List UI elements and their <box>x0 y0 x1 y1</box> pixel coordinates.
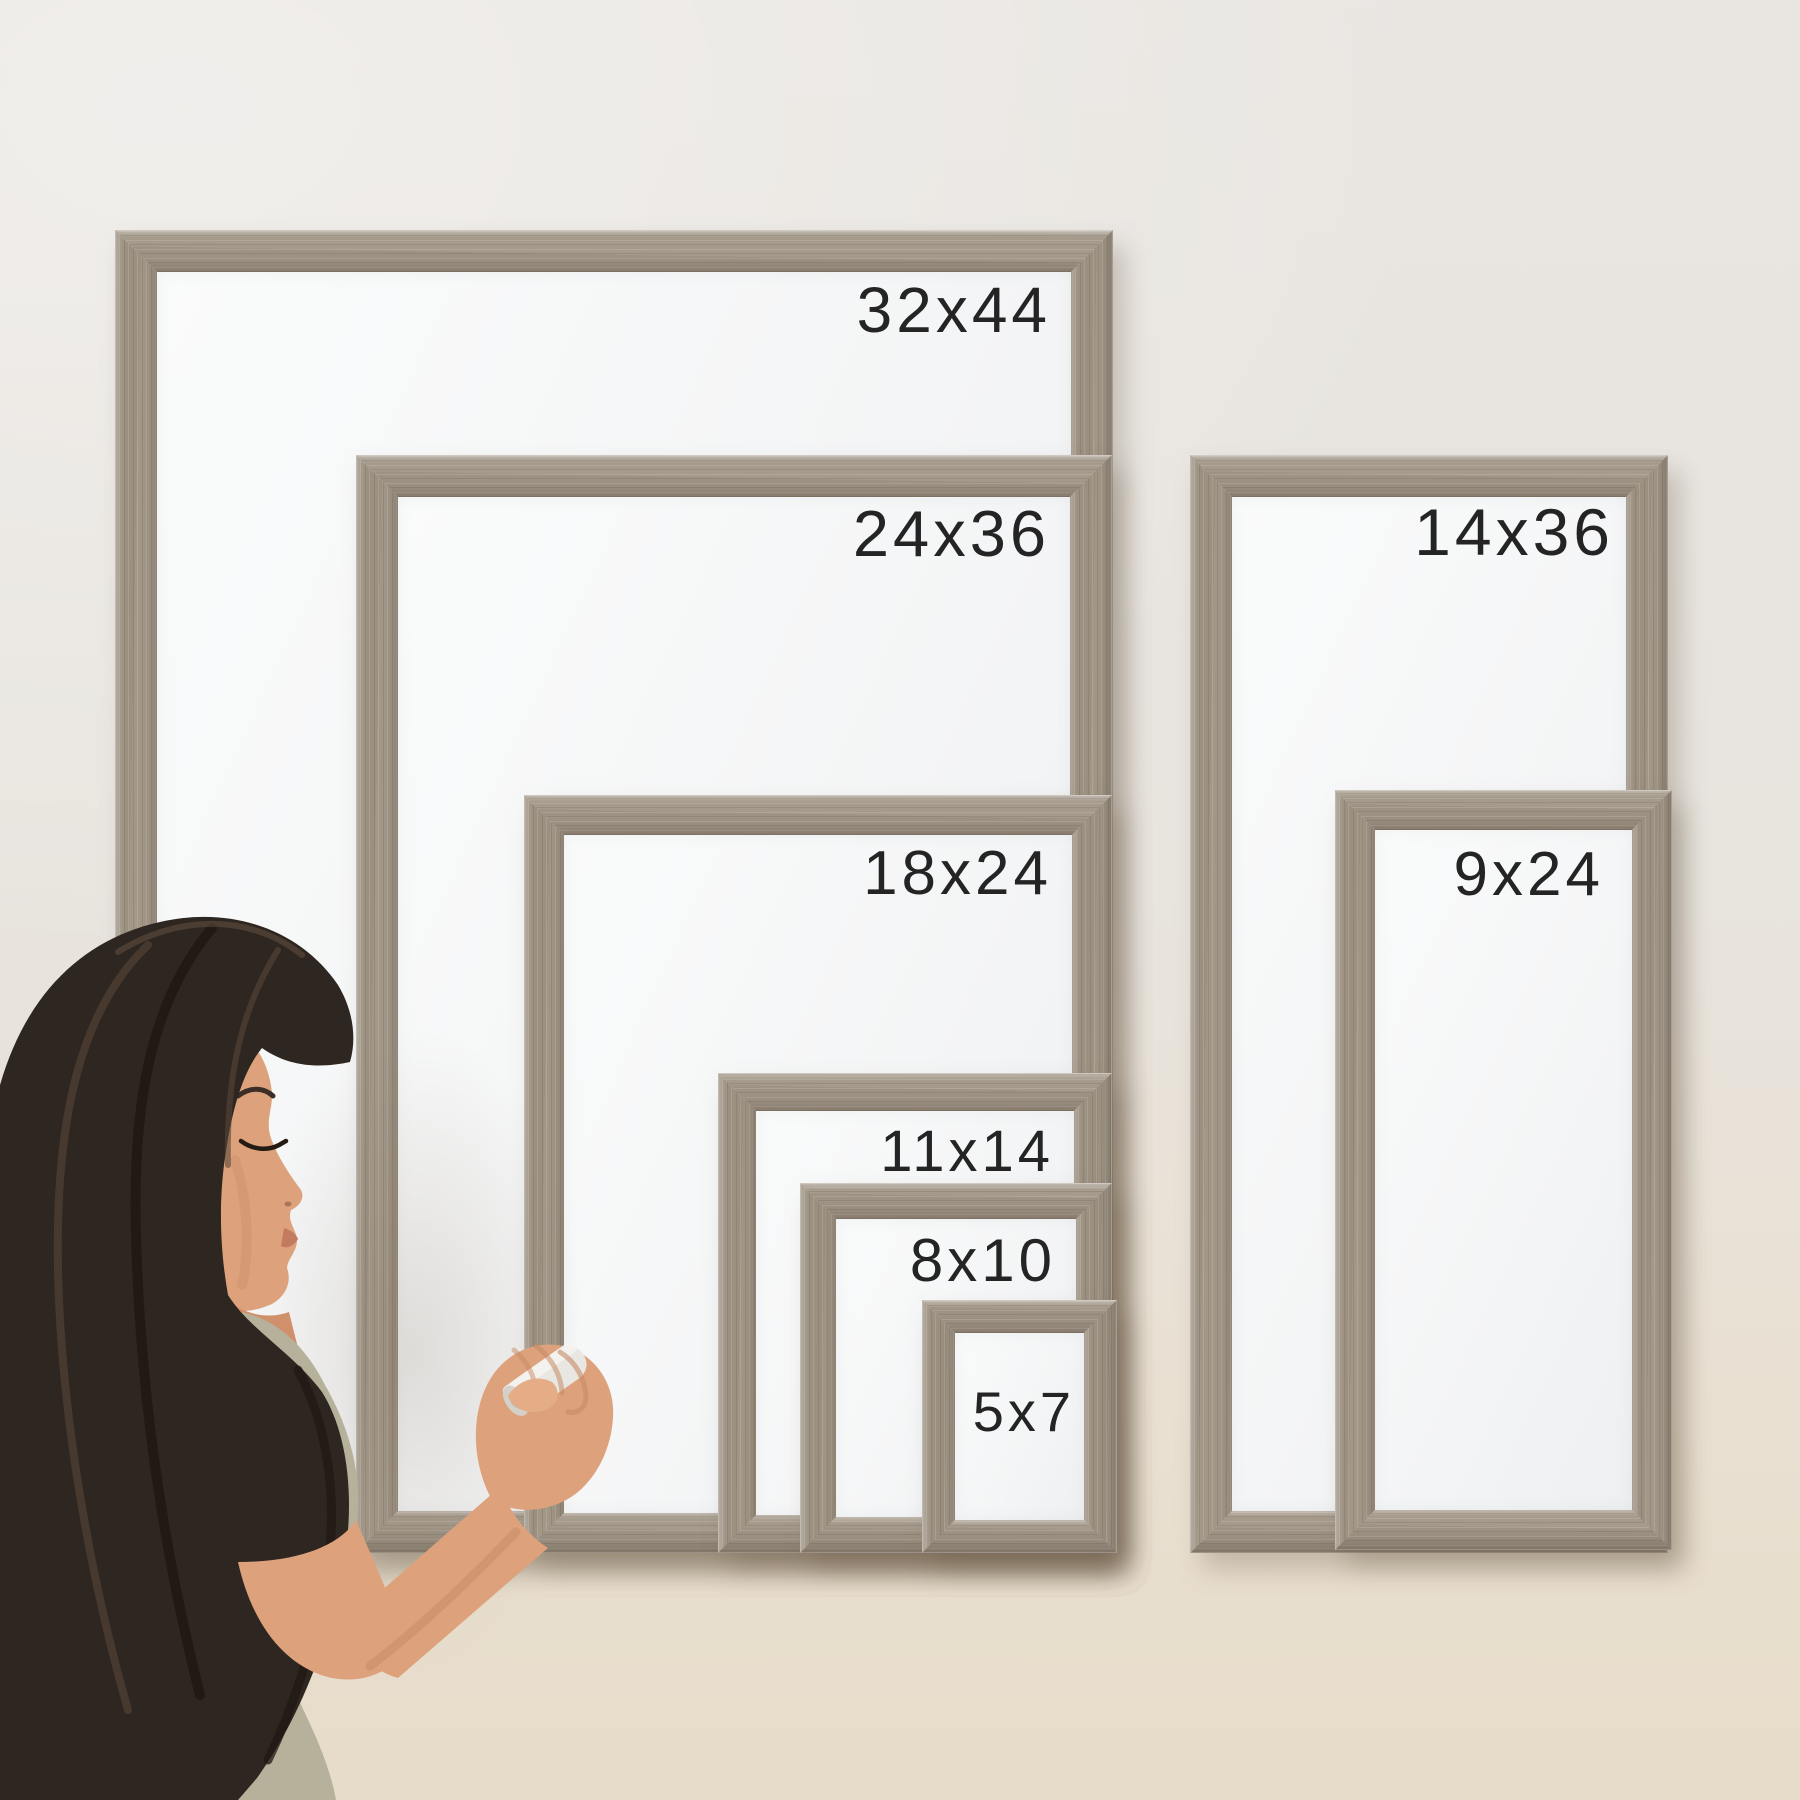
nostril <box>285 1202 292 1207</box>
wall-background: 32x44 24x36 18x24 11x14 8x10 <box>0 0 1800 1800</box>
woman-figure <box>0 0 1800 1800</box>
